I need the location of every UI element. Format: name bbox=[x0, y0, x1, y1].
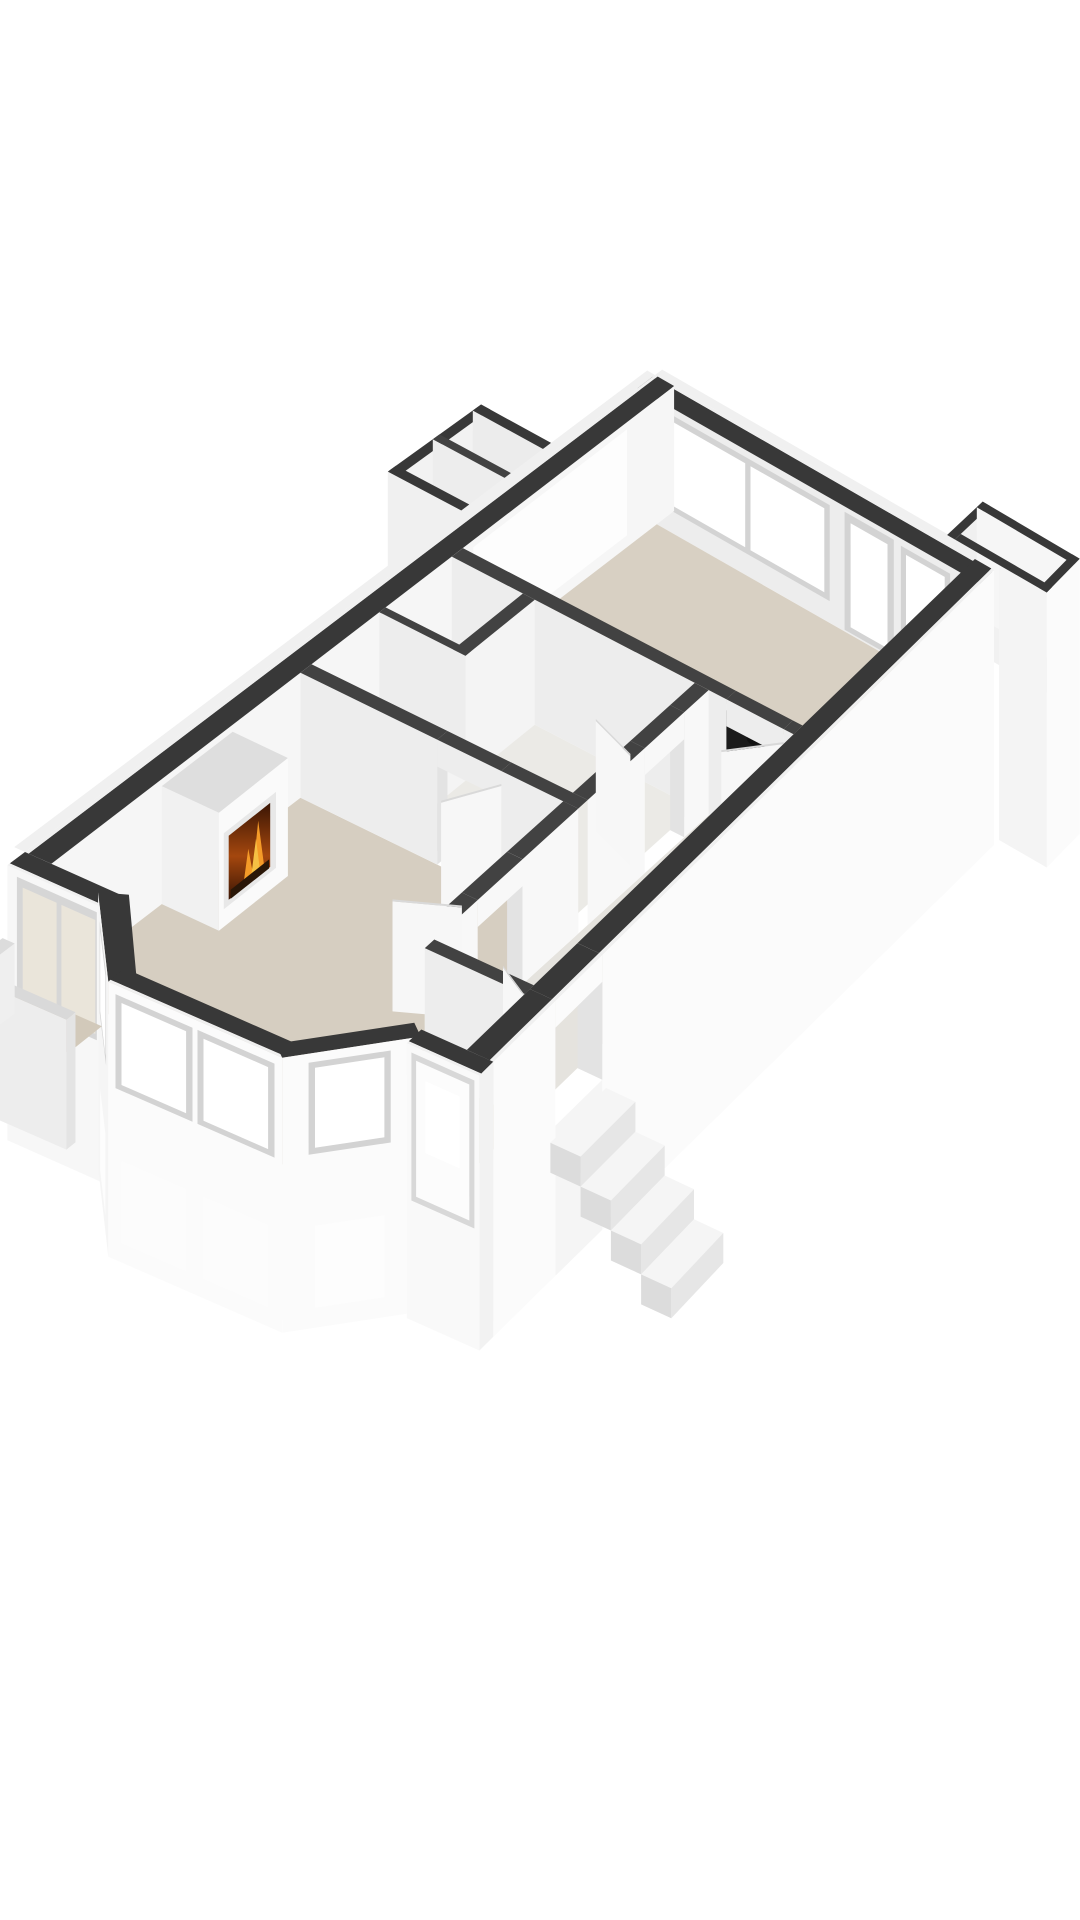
bay-diag2-lower-glass bbox=[315, 1215, 384, 1308]
floorplan-3d-svg bbox=[0, 0, 1080, 1920]
bay-diag2-window-glass bbox=[315, 1057, 384, 1148]
balcony-wall-sw-face bbox=[999, 565, 1047, 868]
terrace-parapet-end bbox=[66, 1012, 75, 1149]
balcony-door-glass bbox=[851, 523, 888, 648]
balcony-wall-se-face bbox=[1047, 559, 1080, 868]
front-door-glass bbox=[426, 1081, 460, 1168]
sw-corner-face bbox=[479, 1062, 493, 1351]
floorplan-image bbox=[0, 0, 1080, 1920]
w2-face-a bbox=[684, 690, 708, 837]
